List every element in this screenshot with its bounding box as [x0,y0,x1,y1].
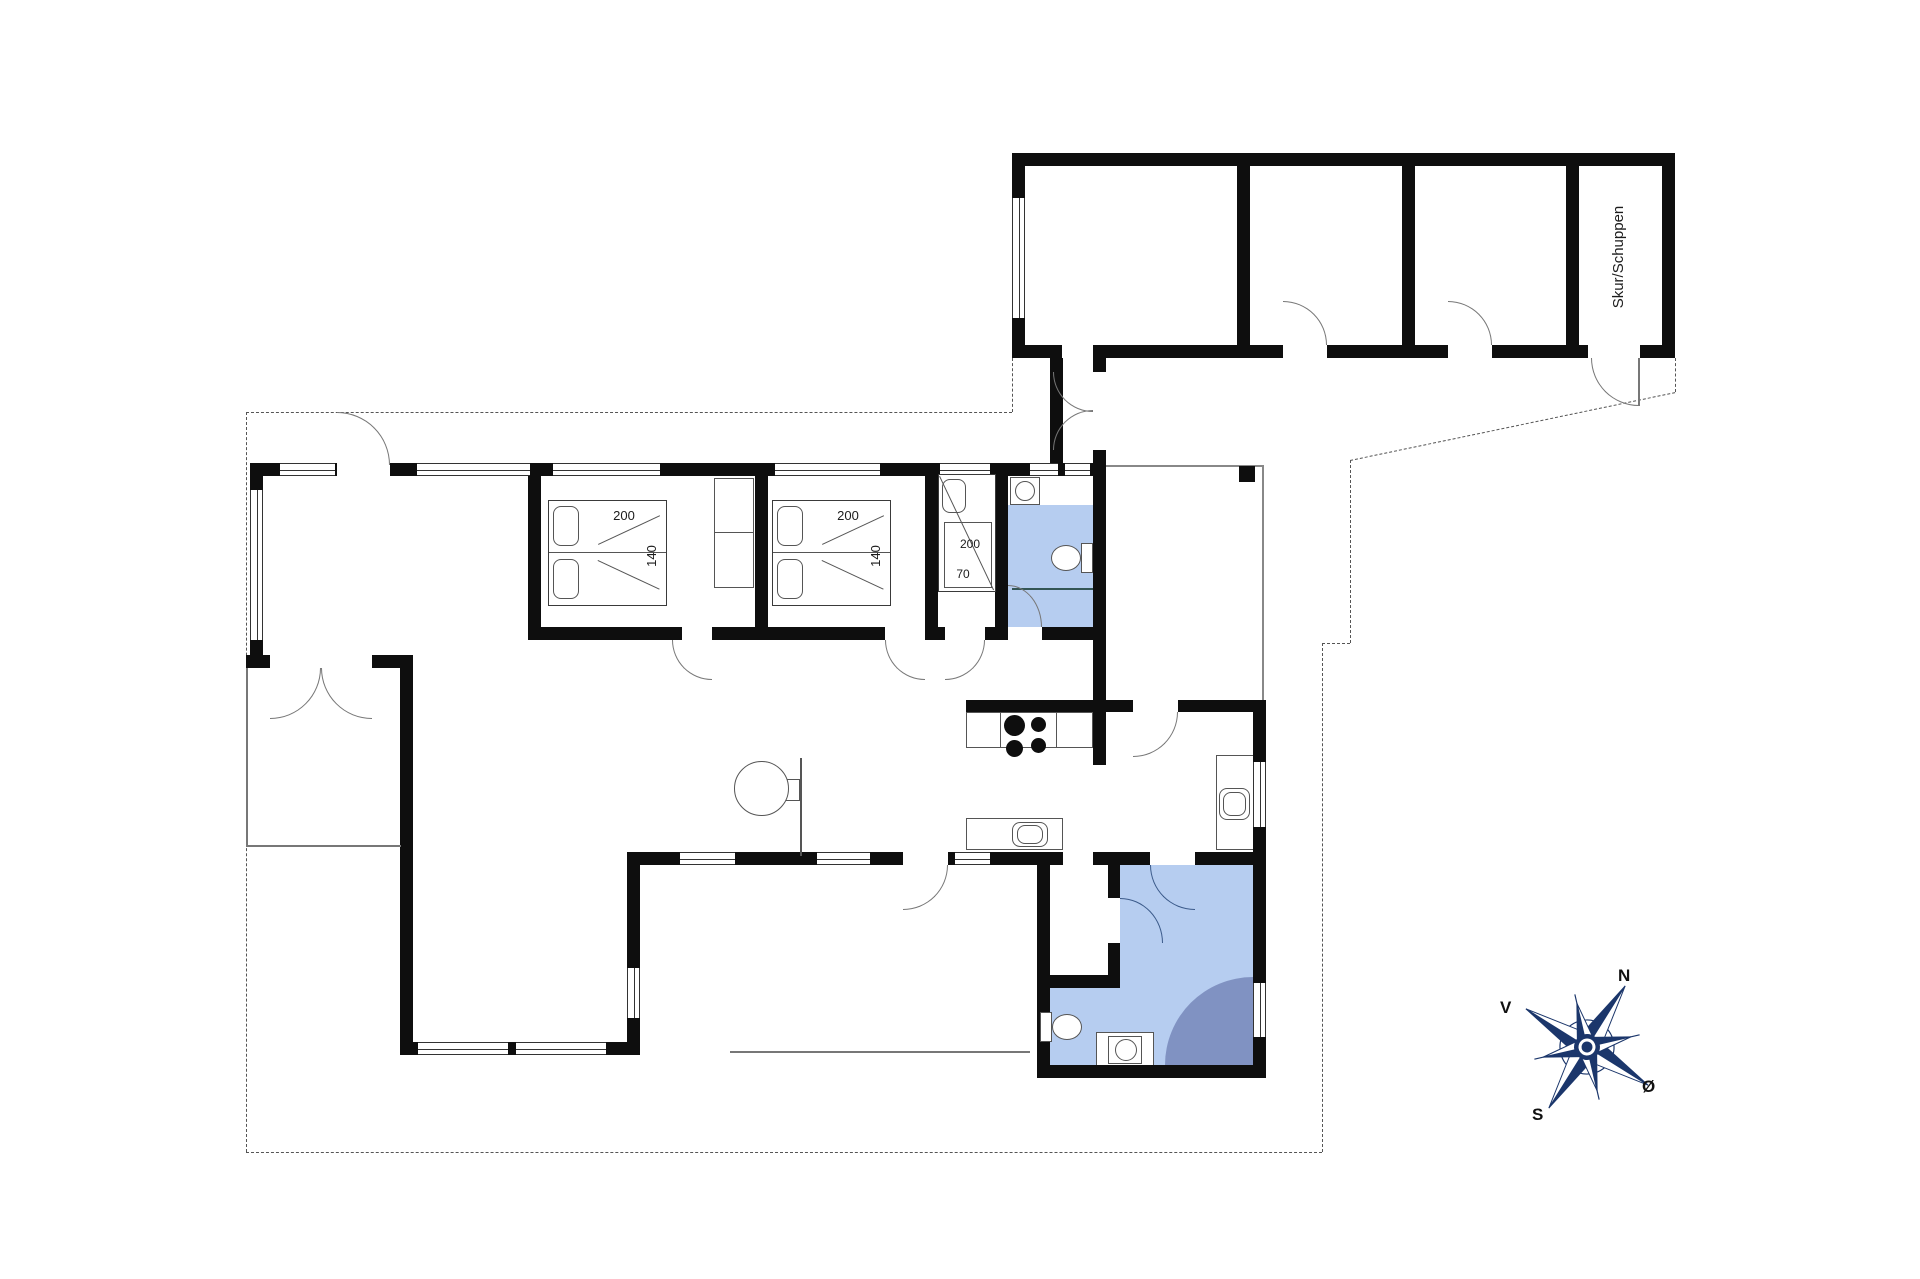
window [680,852,735,865]
window [418,1042,508,1055]
pillow [777,506,803,546]
boundary-dashed [1322,643,1350,644]
door-opening [1062,345,1093,358]
wall [1237,166,1250,345]
window [627,968,640,1018]
terrace-line [246,845,401,847]
pillow [553,506,579,546]
door-opening [270,655,372,668]
wall [627,853,640,1055]
window [955,852,990,865]
stove-flue-line [800,758,802,856]
wall [1566,166,1579,345]
window [250,490,263,640]
wall [400,655,413,1055]
wall [1662,153,1675,358]
stove-icon [1031,738,1046,753]
boundary-dashed [246,1152,1322,1153]
door-opening [903,852,948,865]
door-arc [1283,301,1327,345]
toilet-icon [1052,1014,1082,1040]
terrace-screen-line [730,1051,1030,1053]
laundry-room-floor [1050,865,1108,975]
stove-icon [1006,740,1023,757]
kitchen-sink-icon [1017,825,1043,844]
wall [995,476,1008,627]
door-opening [1063,852,1093,865]
toilet-icon [1051,545,1081,571]
wall [1012,153,1675,166]
bed-length-label: 200 [950,536,990,552]
wall [1402,166,1415,345]
window [1253,762,1266,827]
window [553,463,660,476]
door-opening [1283,345,1327,358]
window [417,463,530,476]
door-opening [682,627,712,640]
door-arc [672,640,712,680]
roof-overhang-line [1262,465,1264,701]
door-opening [1008,627,1042,640]
utility-sink-icon [1223,792,1246,816]
bed-width-label: 140 [868,536,884,576]
boundary-dashed [246,412,1012,413]
wardrobe-shelf [715,532,753,533]
door-opening [1150,852,1195,865]
wall [1037,852,1050,1078]
boundary-dashed [1322,643,1323,1152]
wall [1037,975,1120,988]
boundary-dashed [1350,460,1351,643]
bed-length-label: 200 [828,508,868,524]
door-arc [1133,712,1178,757]
floor-plan: Skur/Schuppen [0,0,1920,1279]
washbasin-icon [1015,481,1035,501]
door-arc [1448,301,1492,345]
wood-stove-icon [734,761,789,816]
wall [528,476,541,640]
pillow [777,559,803,599]
toilet-icon [1081,543,1093,573]
door-arc [321,668,372,719]
door-arc [270,668,321,719]
counter-divider [1056,713,1057,747]
door-arc [903,865,948,910]
shed-label: Skur/Schuppen [1611,197,1629,317]
door-arc [885,640,925,680]
window [280,463,335,476]
door-opening [1108,898,1120,943]
compass-south-label: S [1532,1105,1543,1125]
wall [966,700,1266,712]
window [1030,463,1058,476]
stove-icon [1004,715,1025,736]
roof-post [1239,466,1255,482]
compass-west-label: V [1500,998,1511,1018]
pillow [553,559,579,599]
window [1012,198,1025,318]
bed-width-label: 70 [946,566,980,582]
door-opening [1588,345,1640,358]
stove-icon [1031,717,1046,732]
window [817,852,870,865]
door-opening [1448,345,1492,358]
door-leaf [1638,358,1640,406]
wall [1037,1065,1266,1078]
boundary-dashed [1012,358,1013,412]
compass-rose [1500,960,1675,1135]
boundary-dashed [1675,358,1676,392]
bed-length-label: 200 [604,508,644,524]
door-arc [337,412,390,465]
bed-width-label: 140 [644,536,660,576]
counter-divider [1000,713,1001,747]
window [516,1042,606,1055]
window [775,463,880,476]
window [1253,983,1266,1037]
door-arc [945,640,985,680]
washbasin-icon [1115,1039,1137,1061]
kitchen-counter [966,712,1093,748]
wall [1093,358,1106,372]
wall [1012,345,1675,358]
door-opening [885,627,925,640]
door-opening [1133,700,1178,712]
door-arc [1591,358,1639,406]
wall [1093,450,1106,765]
compass-east-label: Ø [1642,1077,1655,1097]
wall [925,476,938,627]
toilet-icon [1040,1012,1052,1042]
compass-north-label: N [1618,966,1630,986]
door-opening [945,627,985,640]
window [1065,463,1090,476]
terrace-line [246,668,248,845]
wall [755,476,768,627]
